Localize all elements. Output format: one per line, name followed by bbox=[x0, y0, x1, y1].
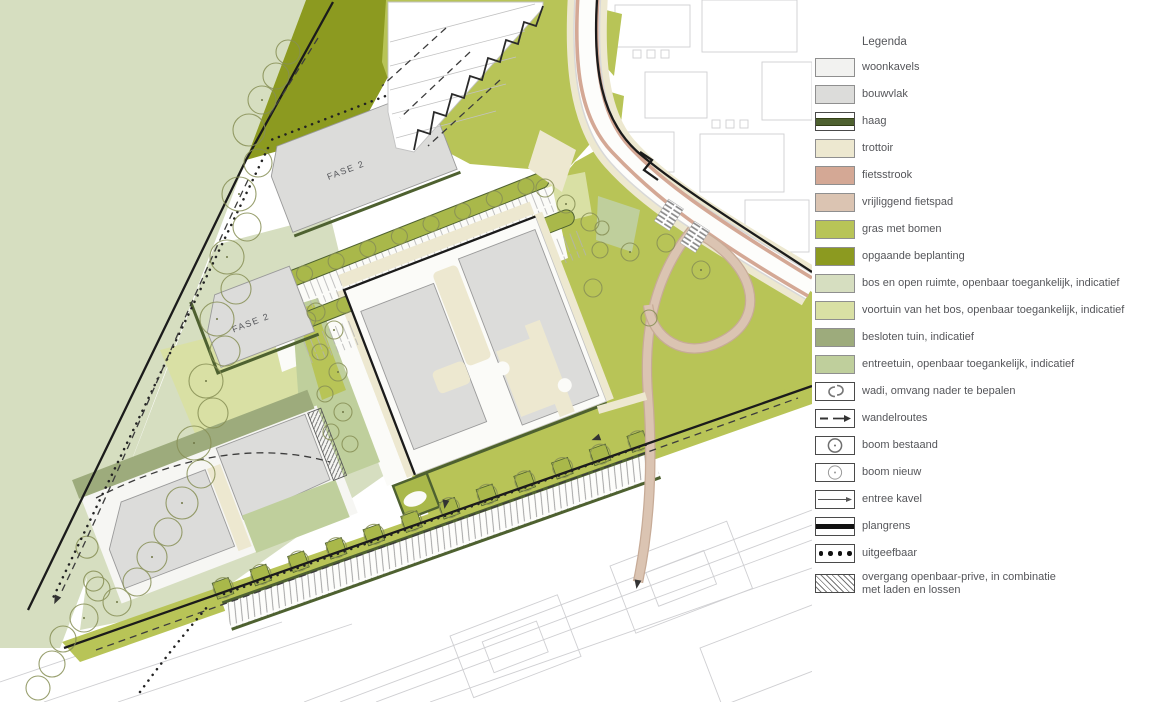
legend-item-vrijliggend-fietspad: vrijliggend fietspad bbox=[815, 193, 1149, 212]
legend-swatch-entreetuin bbox=[815, 355, 855, 374]
legend-label: fietsstrook bbox=[862, 169, 912, 182]
legend-swatch-wadi bbox=[815, 382, 855, 401]
legend-label: gras met bomen bbox=[862, 223, 941, 236]
legend-label: boom bestaand bbox=[862, 439, 938, 452]
legend-label: bouwvlak bbox=[862, 88, 908, 101]
legend-label: plangrens bbox=[862, 520, 910, 533]
legend-item-entree-kavel: entree kavel bbox=[815, 490, 1149, 509]
legend-item-woonkavels: woonkavels bbox=[815, 58, 1149, 77]
legend-swatch-vrijliggend-fietspad bbox=[815, 193, 855, 212]
legend-swatch-opgaande-beplanting bbox=[815, 247, 855, 266]
legend-label: opgaande beplanting bbox=[862, 250, 965, 263]
legend-label: voortuin van het bos, openbaar toegankel… bbox=[862, 304, 1124, 317]
legend-item-plangrens: plangrens bbox=[815, 517, 1149, 536]
legend-item-voortuin: voortuin van het bos, openbaar toegankel… bbox=[815, 301, 1149, 320]
legend-label: trottoir bbox=[862, 142, 893, 155]
legend-item-bouwvlak: bouwvlak bbox=[815, 85, 1149, 104]
legend-label: woonkavels bbox=[862, 61, 919, 74]
dots-icon bbox=[819, 551, 852, 556]
legend-item-trottoir: trottoir bbox=[815, 139, 1149, 158]
legend-item-gras-met-bomen: gras met bomen bbox=[815, 220, 1149, 239]
legend-label: haag bbox=[862, 115, 886, 128]
legend-swatch-woonkavels bbox=[815, 58, 855, 77]
dash-arrow-icon bbox=[816, 410, 854, 427]
legend-swatch-overgang bbox=[815, 574, 855, 593]
screenshot-root: FASE 2 FASE 2 bbox=[0, 0, 1153, 702]
legend-label: uitgeefbaar bbox=[862, 547, 917, 560]
legend-item-boom-nieuw: boom nieuw bbox=[815, 463, 1149, 482]
legend-item-fietsstrook: fietsstrook bbox=[815, 166, 1149, 185]
legend-item-boom-bestaand: boom bestaand bbox=[815, 436, 1149, 455]
legend-label: entree kavel bbox=[862, 493, 922, 506]
legend-swatch-boom-bestaand bbox=[815, 436, 855, 455]
legend-label: bos en open ruimte, openbaar toegankelij… bbox=[862, 277, 1119, 290]
legend-item-besloten-tuin: besloten tuin, indicatief bbox=[815, 328, 1149, 347]
site-plan-map: FASE 2 FASE 2 bbox=[0, 0, 812, 702]
boundary-bar-icon bbox=[816, 524, 854, 529]
legend-label: besloten tuin, indicatief bbox=[862, 331, 974, 344]
legend-swatch-entree-kavel bbox=[815, 490, 855, 509]
new-tree-icon bbox=[816, 464, 854, 481]
entry-arrow-icon bbox=[816, 491, 854, 508]
legend-swatch-bos-en-open-ruimte bbox=[815, 274, 855, 293]
legend-swatch-wandelroutes bbox=[815, 409, 855, 428]
legend-item-haag: haag bbox=[815, 112, 1149, 131]
legend-label: wandelroutes bbox=[862, 412, 927, 425]
legend-swatch-gras-met-bomen bbox=[815, 220, 855, 239]
legend-label: boom nieuw bbox=[862, 466, 921, 479]
legend-item-overgang: overgang openbaar-prive, in combinatie m… bbox=[815, 571, 1149, 596]
legend-panel: Legenda woonkavels bouwvlak haag trottoi… bbox=[812, 0, 1153, 702]
legend-label: vrijliggend fietspad bbox=[862, 196, 953, 209]
legend-item-wadi: wadi, omvang nader te bepalen bbox=[815, 382, 1149, 401]
existing-tree-icon bbox=[816, 437, 854, 454]
legend-swatch-haag bbox=[815, 112, 855, 131]
legend-item-entreetuin: entreetuin, openbaar toegankelijk, indic… bbox=[815, 355, 1149, 374]
legend-item-bos-en-open-ruimte: bos en open ruimte, openbaar toegankelij… bbox=[815, 274, 1149, 293]
legend-item-uitgeefbaar: uitgeefbaar bbox=[815, 544, 1149, 563]
legend-swatch-besloten-tuin bbox=[815, 328, 855, 347]
legend-item-wandelroutes: wandelroutes bbox=[815, 409, 1149, 428]
legend-swatch-voortuin bbox=[815, 301, 855, 320]
hedge-bar-icon bbox=[816, 118, 854, 126]
legend-label: wadi, omvang nader te bepalen bbox=[862, 385, 1016, 398]
wadi-icon bbox=[816, 383, 854, 400]
legend-item-opgaande-beplanting: opgaande beplanting bbox=[815, 247, 1149, 266]
legend-swatch-fietsstrook bbox=[815, 166, 855, 185]
legend-swatch-boom-nieuw bbox=[815, 463, 855, 482]
legend-title: Legenda bbox=[862, 36, 1149, 48]
legend-swatch-bouwvlak bbox=[815, 85, 855, 104]
legend-swatch-plangrens bbox=[815, 517, 855, 536]
legend-label: overgang openbaar-prive, in combinatie m… bbox=[862, 571, 1056, 596]
legend-label: entreetuin, openbaar toegankelijk, indic… bbox=[862, 358, 1074, 371]
legend-swatch-uitgeefbaar bbox=[815, 544, 855, 563]
legend-swatch-trottoir bbox=[815, 139, 855, 158]
